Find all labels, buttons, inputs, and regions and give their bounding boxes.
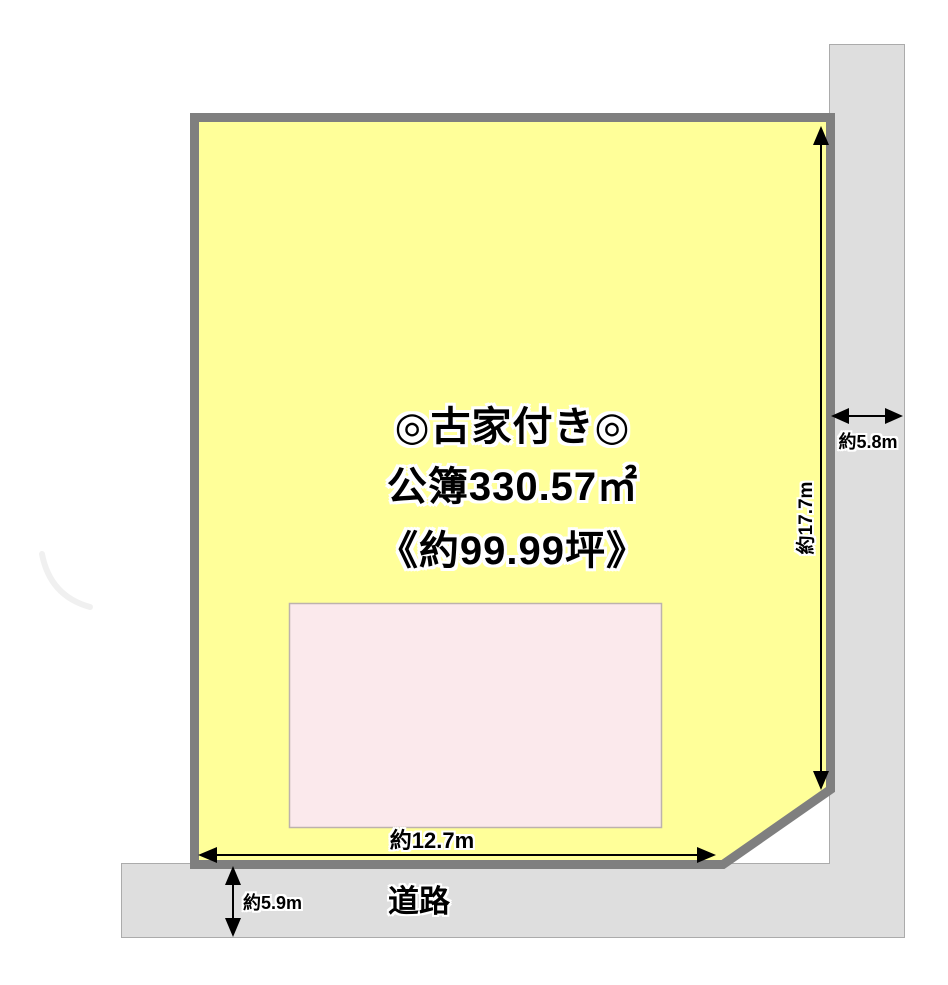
area-tsubo-label: 《約99.99坪》 bbox=[192, 527, 833, 575]
watermark-arc bbox=[42, 554, 90, 607]
building-footprint-shape bbox=[290, 604, 662, 828]
land-plot-diagram: ◎古家付き◎ 公簿330.57㎡ 《約99.99坪》 約5.8m 約17.7m … bbox=[0, 0, 948, 985]
road-label: 道路 bbox=[344, 884, 494, 920]
land-note-line-1: ◎古家付き◎ bbox=[192, 403, 833, 451]
area-sqm-label: 公簿330.57㎡ bbox=[192, 463, 833, 511]
dimension-east-depth: 約17.7m bbox=[795, 468, 819, 568]
dimension-south-frontage: 約12.7m bbox=[332, 830, 532, 852]
dimension-right-road-width: 約5.8m bbox=[830, 431, 906, 453]
